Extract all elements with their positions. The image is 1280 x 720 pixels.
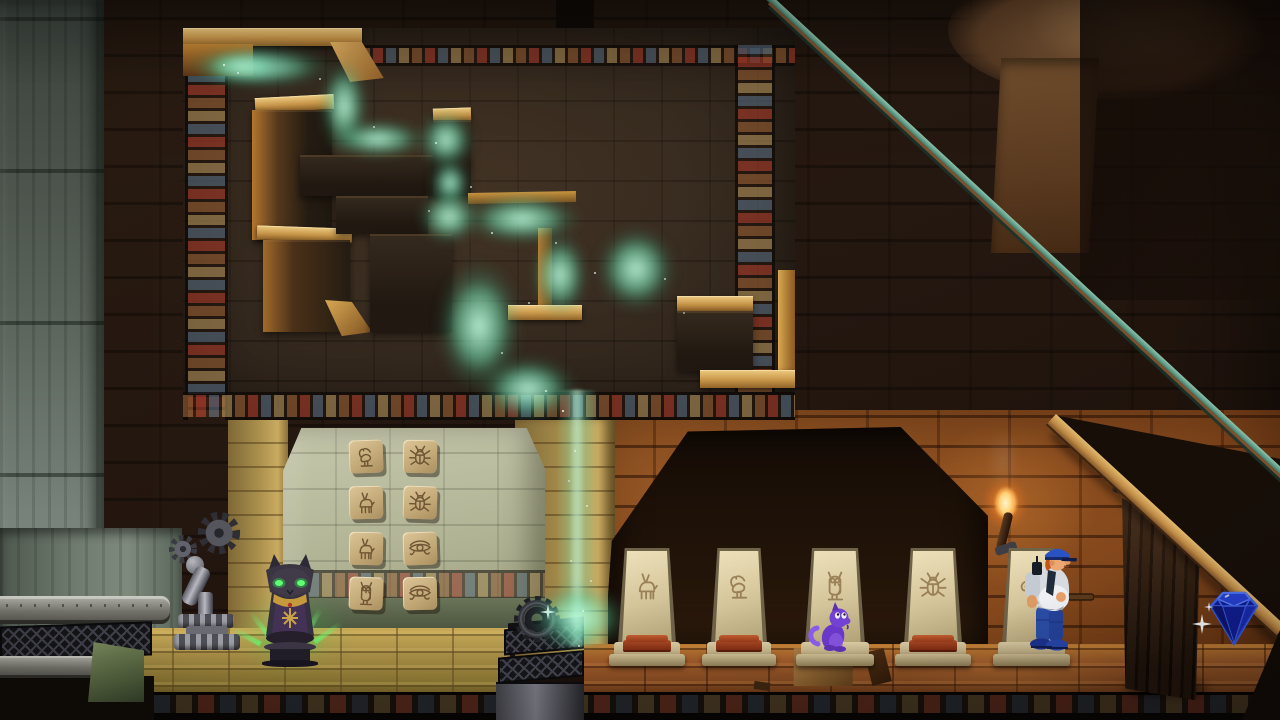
cushion-top [626, 635, 668, 642]
cushion-button[interactable] [716, 640, 762, 650]
scarab-glyph-icon [915, 568, 951, 604]
stele-base-plate [609, 654, 685, 666]
stele-base-plate [895, 654, 971, 666]
blue-gem[interactable] [1198, 582, 1268, 652]
stele-base-plate [796, 654, 874, 666]
cushion-top [719, 635, 759, 642]
stele-base-plate [702, 654, 776, 666]
stele-glyph [721, 568, 757, 604]
cushion-top [912, 635, 954, 642]
stele-base-plate [993, 654, 1070, 666]
stele-ibis[interactable] [709, 548, 769, 666]
stele-tablet [709, 548, 769, 646]
cushion-button[interactable] [909, 640, 956, 650]
game-viewport [0, 0, 1280, 720]
police-officer[interactable] [1012, 548, 1094, 652]
stele-tablet [902, 548, 964, 646]
gazelle-glyph-icon [629, 568, 665, 604]
stele-tablet [616, 548, 678, 646]
stele-scarab[interactable] [902, 548, 964, 666]
stele-glyph [915, 568, 951, 604]
stele-glyph [629, 568, 665, 604]
ibis-glyph-icon [721, 568, 757, 604]
stele-gazelle[interactable] [616, 548, 678, 666]
cushion-button[interactable] [623, 640, 670, 650]
purple-cat[interactable] [806, 598, 862, 654]
